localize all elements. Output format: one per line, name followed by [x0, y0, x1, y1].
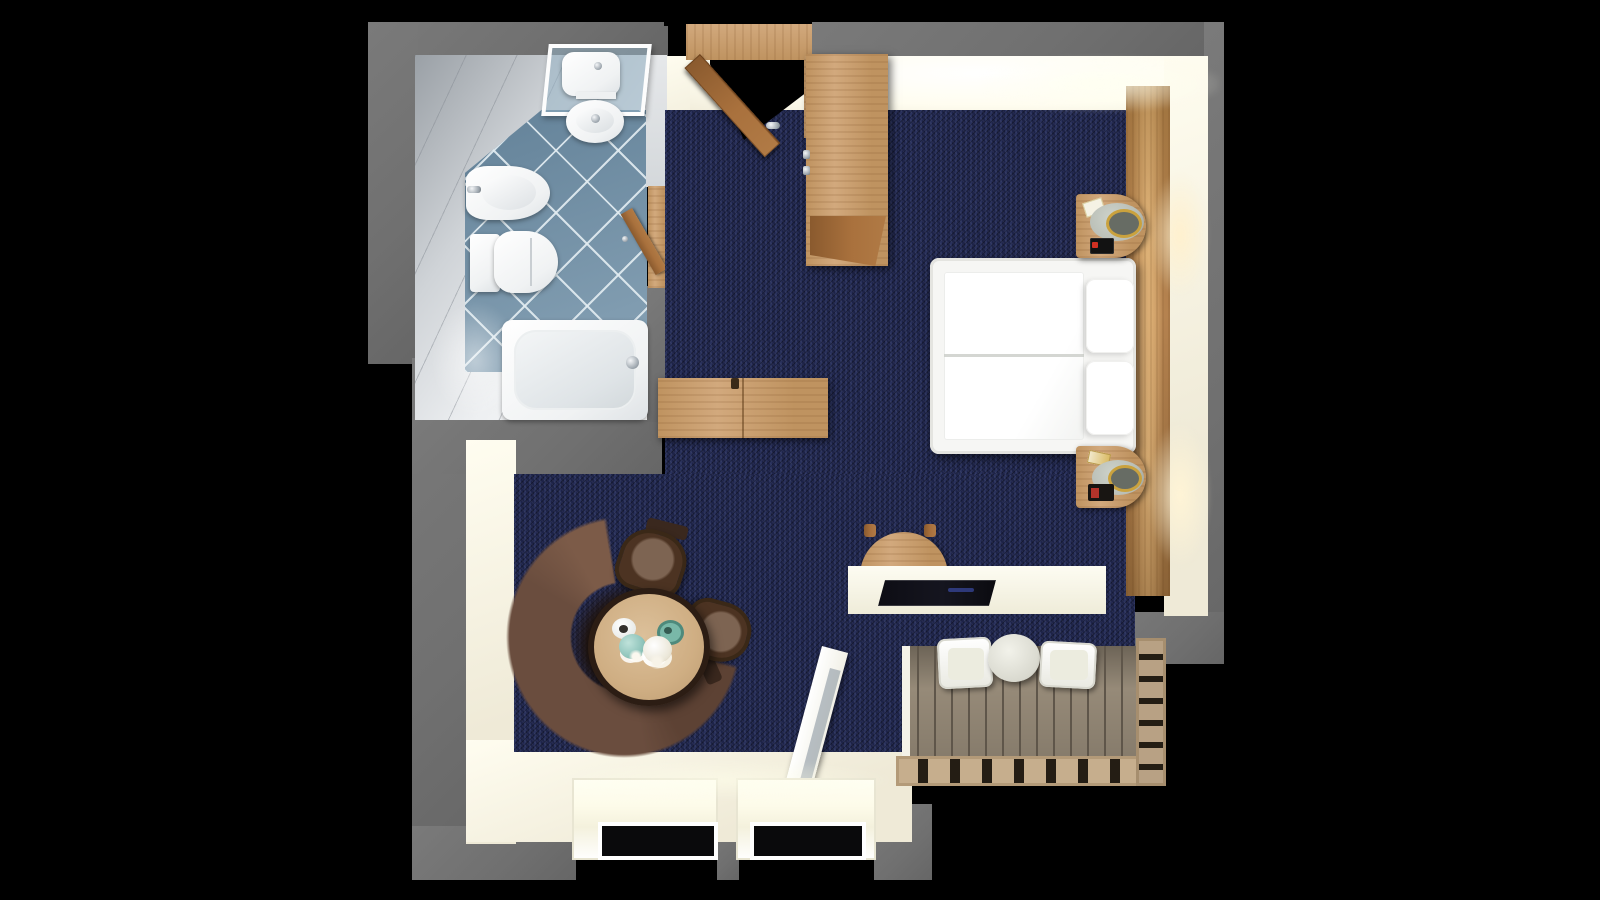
flower-sprig-2	[648, 655, 666, 669]
pillow-bottom	[1086, 361, 1134, 435]
bathtub-basin	[514, 330, 636, 410]
balcony-table	[988, 634, 1040, 682]
laptop-screen-glint	[948, 588, 974, 592]
wardrobe-handle-2	[803, 166, 810, 175]
window-2-glass	[750, 822, 866, 860]
floorplan-canvas	[0, 0, 1600, 900]
bathroom-door-handle	[622, 236, 628, 242]
shower-drain	[594, 62, 602, 70]
wall-bathroom-bottom	[412, 418, 662, 474]
bed-duvet-crease	[944, 354, 1084, 357]
entrance-door-handle	[766, 122, 780, 129]
lamp-ring-upper	[1106, 209, 1142, 238]
balcony-rail-bottom	[896, 756, 1164, 786]
balcony-left-sill	[902, 646, 910, 758]
bidet-tap	[467, 186, 481, 193]
wall-top-right	[806, 22, 1208, 58]
balcony-chair-left-seat	[948, 648, 984, 680]
bathtub-faucet	[626, 356, 639, 369]
console-door-seam	[742, 378, 744, 438]
bidet-basin	[482, 175, 536, 210]
sink-bracket	[576, 92, 616, 99]
tea-cup-teal-center	[664, 627, 672, 634]
desk-chair-foot-left	[864, 524, 876, 537]
pillow-top	[1086, 279, 1134, 353]
toilet-lid-seam	[530, 238, 532, 286]
entrance-door-lintel	[686, 24, 812, 60]
flower-sprig-1	[628, 650, 644, 663]
wardrobe-handle-1	[803, 150, 810, 159]
window-1-glass	[598, 822, 718, 860]
toilet-bowl	[494, 231, 558, 293]
balcony-chair-right-seat	[1050, 650, 1088, 680]
innerwall-right	[1164, 56, 1208, 616]
teapot-white-lid	[619, 625, 628, 633]
alarm-clock-display	[1092, 242, 1098, 248]
laptop-on-desk	[878, 580, 996, 606]
wall-left-upper	[368, 22, 418, 364]
sink-tap	[591, 114, 600, 123]
book-lower-stripe	[1091, 488, 1099, 498]
shower-tray	[562, 52, 620, 96]
desk-chair-foot-right	[924, 524, 936, 537]
bathroom-wall-top-of-door	[646, 55, 667, 187]
console-handle	[731, 378, 739, 389]
balcony-rail-right	[1136, 638, 1166, 786]
